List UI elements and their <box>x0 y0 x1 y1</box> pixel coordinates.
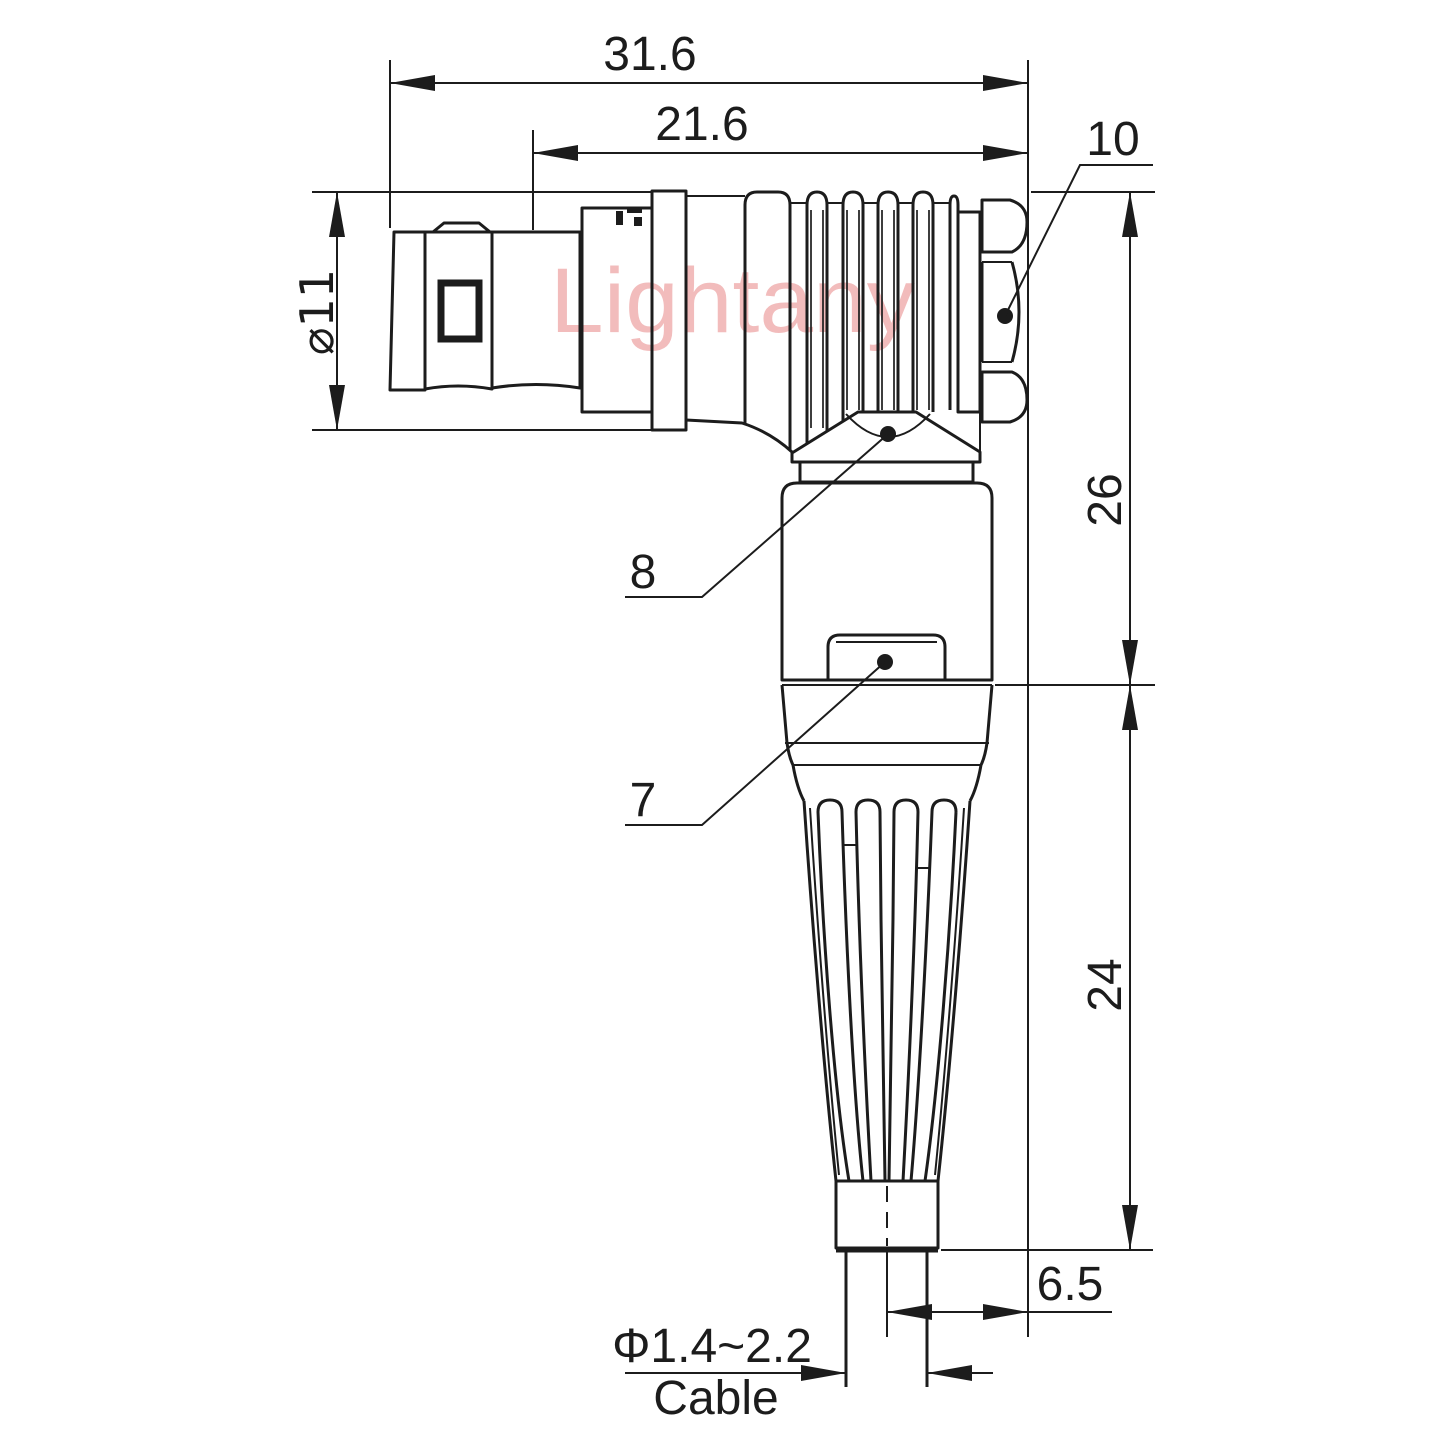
arrowhead-right <box>927 1365 972 1381</box>
arrowhead-left <box>887 1304 932 1320</box>
coupling-nut <box>958 200 1027 422</box>
dim-label-cable: Cable <box>653 1372 778 1425</box>
technical-drawing: Lightany <box>0 0 1440 1440</box>
lower-housing <box>782 483 992 765</box>
arrowhead-bottom <box>329 385 345 430</box>
connector-outline <box>390 191 1027 1387</box>
dim-value-cable-diameter: Φ1.4~2.2 <box>612 1320 812 1373</box>
dim-lower-height: 24 <box>1079 685 1138 1250</box>
barrel-key-marks <box>616 207 642 226</box>
cone-rib <box>856 800 885 1181</box>
callout-elbow-backnut: 8 <box>625 434 888 599</box>
dim-shell-diameter: ⌀11 <box>290 192 345 430</box>
dim-value-lower-height: 24 <box>1079 958 1132 1011</box>
arrowhead-top <box>329 192 345 237</box>
nose-window <box>441 283 479 339</box>
nut-middle-flat-arc <box>1012 262 1019 362</box>
elbow-collar <box>800 462 973 482</box>
nut-top-lobe <box>982 200 1027 252</box>
housing-taper-right <box>981 685 992 765</box>
dim-value-overall-length: 31.6 <box>603 28 696 81</box>
dim-value-cable-offset: 6.5 <box>1037 1258 1104 1311</box>
arrowhead-bottom <box>1122 1205 1138 1250</box>
nose-tip-ring <box>390 232 425 390</box>
dim-cable-offset: 6.5 <box>887 1258 1112 1320</box>
arrowhead-top <box>1122 192 1138 237</box>
cone-inner-edges <box>810 808 964 1175</box>
arrowhead-left <box>390 75 435 91</box>
arrowhead-right <box>983 1304 1028 1320</box>
arrowhead-bottom <box>1122 640 1138 685</box>
drawing-canvas: Lightany <box>0 0 1440 1440</box>
dim-upper-height: 26 <box>1079 192 1138 685</box>
crimp-sleeve-cable <box>836 1181 938 1387</box>
dim-value-shell-diameter: ⌀11 <box>290 269 344 355</box>
callout-label-elbow-backnut: 8 <box>630 546 657 599</box>
callout-label-coupling-nut: 10 <box>1086 113 1139 166</box>
dim-rear-length: 21.6 <box>533 98 1028 161</box>
elbow-backnut <box>792 412 980 482</box>
arrowhead-right <box>983 145 1028 161</box>
dim-cable-diameter: Φ1.4~2.2 Cable <box>612 1320 993 1425</box>
dim-value-upper-height: 26 <box>1079 473 1132 526</box>
callout-label-latch-sleeve: 7 <box>630 774 657 827</box>
arrowhead-right <box>983 75 1028 91</box>
housing-taper-lines <box>785 743 989 765</box>
arrowhead-top <box>1122 685 1138 730</box>
housing-body <box>782 483 992 680</box>
strain-relief-cone <box>793 765 981 1181</box>
leader-line <box>625 434 888 597</box>
boot-bottom-edge <box>686 420 792 452</box>
nut-bottom-lobe <box>982 372 1027 422</box>
watermark-text: Lightany <box>550 250 915 352</box>
arrowhead-left <box>533 145 578 161</box>
dim-overall-length: 31.6 <box>390 28 1028 91</box>
dim-value-rear-length: 21.6 <box>655 98 748 151</box>
callout-latch-sleeve: 7 <box>625 662 885 827</box>
cone-shoulder <box>793 765 981 801</box>
nut-spacer-ring <box>958 212 980 412</box>
cone-rib <box>889 800 918 1181</box>
